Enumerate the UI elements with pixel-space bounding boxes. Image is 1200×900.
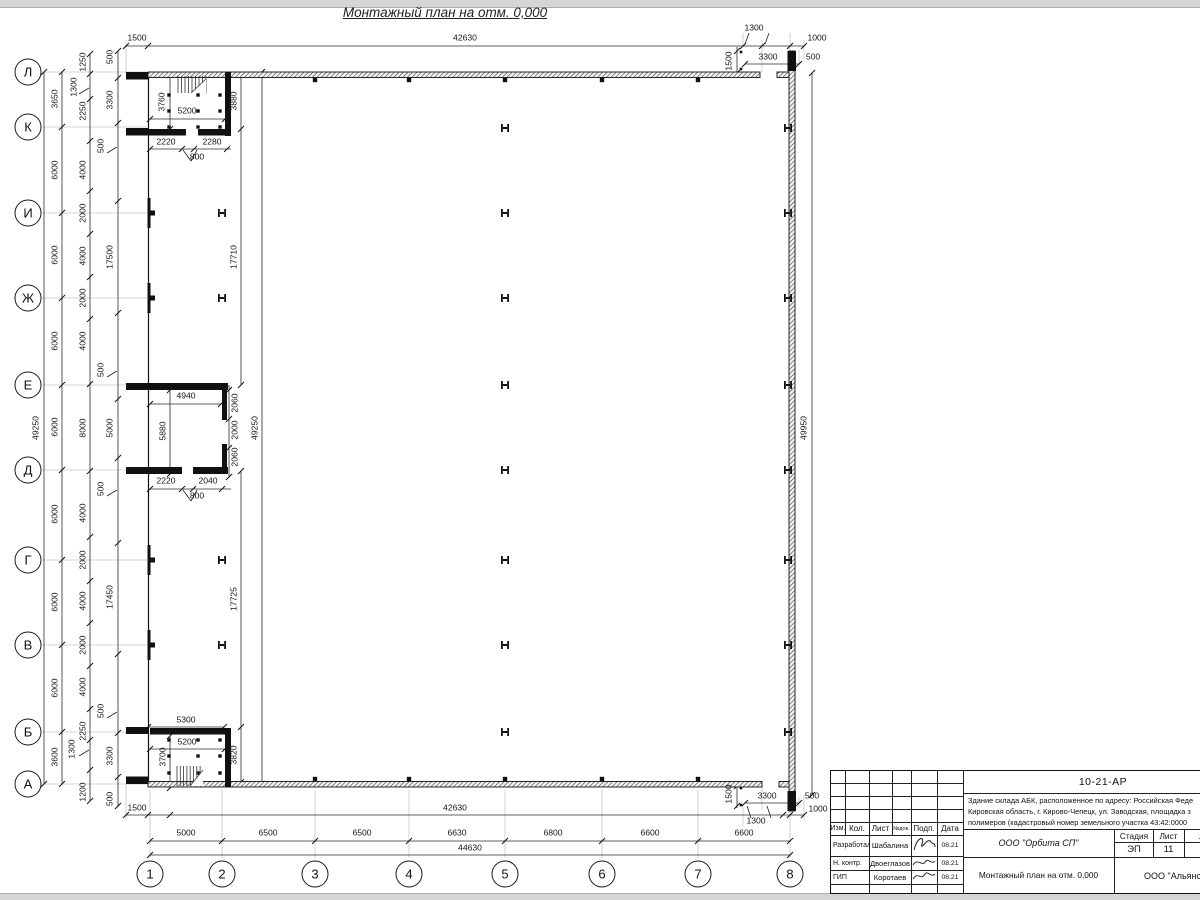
dim-label: 1200 [79, 782, 88, 801]
dim-label: 8000 [79, 418, 88, 437]
row-axis-bubble-Г: Г [15, 547, 42, 574]
dim-label: 1300 [744, 24, 763, 33]
dim-label: 4000 [79, 677, 88, 696]
dim-label: 1000 [808, 805, 827, 814]
perimeter-wall [789, 51, 795, 811]
h-column-marker [503, 384, 507, 386]
tb-col-data: Дата [937, 822, 963, 835]
dim-label: 2000 [79, 635, 88, 654]
pilaster-column [151, 558, 156, 563]
h-column-marker [786, 469, 790, 471]
room-column-dot [167, 93, 170, 96]
dim-label: 2060 [231, 447, 240, 466]
h-column-marker [786, 384, 790, 386]
col-axis-bubble-5: 5 [492, 861, 519, 888]
h-column-marker [790, 124, 792, 132]
h-column-marker [224, 294, 226, 302]
dim-label: 3600 [51, 747, 60, 766]
dim-label: 4000 [79, 591, 88, 610]
dim-label: 6000 [51, 504, 60, 523]
h-column-marker [507, 728, 509, 736]
dim-label: 2250 [79, 101, 88, 120]
tb-col-izm: Изм. [831, 822, 845, 835]
dim-label: 6000 [51, 678, 60, 697]
dim-label: 3300 [758, 53, 777, 62]
dim-label: 2000 [79, 550, 88, 569]
h-column-marker [507, 466, 509, 474]
tb-grid-line [869, 771, 870, 893]
wall-column [407, 777, 411, 781]
dim-label: 3880 [230, 91, 239, 110]
dim-label: 3820 [230, 745, 239, 764]
room-column-dot [218, 738, 221, 741]
tb-plan-name: Монтажный план на отм. 0,000 [964, 857, 1113, 893]
dim-label: 3300 [106, 90, 115, 109]
dim-label: 2250 [79, 721, 88, 740]
plan-drawing [0, 0, 1200, 900]
dim-label: 2220 [156, 477, 175, 486]
h-column-marker [784, 728, 786, 736]
tb-grid-line [845, 771, 846, 835]
wall-pier [788, 51, 797, 71]
h-column-marker [790, 556, 792, 564]
tb-date: 08.21 [938, 870, 962, 884]
dim-label: 1300 [746, 817, 765, 826]
dim-label: 6000 [51, 417, 60, 436]
tb-grid-line [1114, 842, 1200, 843]
dim-label: 2280 [202, 138, 221, 147]
dim-label: 500 [106, 792, 115, 806]
h-column-marker [507, 381, 509, 389]
row-axis-bubble-Д: Д [15, 457, 42, 484]
dim-leader [107, 490, 117, 496]
pilaster-column [151, 296, 156, 301]
dim-label: 500 [806, 53, 820, 62]
wall-pier [148, 467, 182, 474]
dim-leader [107, 712, 117, 718]
pilaster [148, 283, 151, 313]
tb-grid-line [831, 809, 963, 810]
dim-label: 1300 [70, 77, 79, 96]
dim-label: 3700 [159, 747, 168, 766]
room-column-dot [167, 754, 170, 757]
tb-name: Шабалина [870, 835, 910, 856]
tb-role: ГИП [833, 870, 869, 884]
h-column-marker [507, 124, 509, 132]
dim-label: 3300 [106, 746, 115, 765]
h-column-marker [503, 127, 507, 129]
h-column-marker [501, 466, 503, 474]
dim-label: 4000 [79, 160, 88, 179]
h-column-marker [220, 559, 224, 561]
dim-leader [107, 371, 117, 377]
dim-label: 1500 [127, 804, 146, 813]
dim-label: 5200 [177, 107, 196, 116]
dim-label: 800 [190, 153, 204, 162]
wall-pier [193, 467, 228, 474]
wall-pier [148, 383, 228, 390]
tb-grid-line [831, 835, 963, 836]
room-column-dot [167, 125, 170, 128]
h-column-marker [786, 127, 790, 129]
h-column-marker [786, 644, 790, 646]
dim-leader [107, 147, 117, 153]
h-column-marker [218, 294, 220, 302]
wall-column [503, 777, 507, 781]
dim-label: 500 [97, 704, 106, 718]
dim-label: 5200 [177, 738, 196, 747]
dim-label: 4940 [176, 392, 195, 401]
dim-label: 2000 [231, 420, 240, 439]
row-axis-bubble-И: И [15, 200, 42, 227]
dim-label: 5300 [176, 716, 195, 725]
dim-label: 6500 [352, 829, 371, 838]
wall-pier [126, 128, 148, 136]
h-column-marker [220, 212, 224, 214]
tb-role: Разработал [833, 835, 869, 856]
h-column-marker [790, 641, 792, 649]
tb-grid-line [963, 793, 1200, 794]
dim-leader [765, 33, 769, 44]
h-column-marker [507, 209, 509, 217]
dim-label: 4000 [79, 503, 88, 522]
pilaster [148, 198, 151, 228]
dim-label: 5000 [176, 829, 195, 838]
pilaster [148, 630, 151, 660]
dim-label: 6500 [258, 829, 277, 838]
dim-label: 5880 [159, 421, 168, 440]
tb-grid-line [831, 856, 963, 857]
h-column-marker [786, 559, 790, 561]
pilaster [148, 545, 151, 575]
h-column-marker [507, 294, 509, 302]
col-axis-bubble-7: 7 [685, 861, 712, 888]
dim-label: 17500 [106, 245, 115, 269]
dim-label: 2000 [79, 288, 88, 307]
h-column-marker [503, 297, 507, 299]
dim-label: 17710 [230, 245, 239, 269]
h-column-marker [501, 556, 503, 564]
dim-leader [79, 88, 89, 94]
col-axis-bubble-3: 3 [302, 861, 329, 888]
dim-label: 42630 [453, 34, 477, 43]
dim-label: 5000 [106, 418, 115, 437]
wall-pier [198, 129, 231, 136]
tb-sheet-value: 11 [1153, 842, 1184, 857]
tb-name: Коротаев [870, 870, 910, 884]
dim-label: 500 [805, 792, 819, 801]
row-axis-bubble-Л: Л [15, 59, 42, 86]
wall-pier [788, 791, 797, 811]
dim-label: 2220 [156, 138, 175, 147]
h-column-marker [220, 297, 224, 299]
row-axis-bubble-В: В [15, 632, 42, 659]
tb-sheets-value: 1 [1184, 842, 1200, 857]
wall-pier [148, 129, 186, 136]
project-description-line: полимеров (кадастровый номер земельного … [968, 817, 1200, 827]
h-column-marker [501, 381, 503, 389]
h-column-marker [218, 556, 220, 564]
dim-label: 1000 [807, 34, 826, 43]
h-column-marker [784, 294, 786, 302]
dim-label: 6630 [447, 829, 466, 838]
col-axis-bubble-2: 2 [209, 861, 236, 888]
h-column-marker [786, 297, 790, 299]
dim-label: 6000 [51, 592, 60, 611]
dim-label: 3760 [158, 92, 167, 111]
h-column-marker [224, 556, 226, 564]
dim-leader [767, 806, 771, 818]
dim-label: 42630 [443, 804, 467, 813]
room-column-dot [218, 771, 221, 774]
dim-label: 1300 [68, 739, 77, 758]
h-column-marker [503, 469, 507, 471]
wall-column [407, 78, 411, 82]
drawing-sheet: Монтажный план на отм. 0,000 15004263013… [0, 0, 1200, 900]
corner-dot [740, 68, 743, 71]
room-column-dot [167, 109, 170, 112]
h-column-marker [501, 728, 503, 736]
h-column-marker [220, 644, 224, 646]
perimeter-wall [148, 72, 760, 78]
wall-column [696, 78, 700, 82]
h-column-marker [790, 728, 792, 736]
corner-dot [740, 804, 743, 807]
dim-label: 2060 [231, 393, 240, 412]
dim-label: 500 [97, 139, 106, 153]
dim-leader [745, 33, 749, 44]
tb-grid-line [892, 771, 893, 835]
title-block: 10-21-АР Здание склада АБК, расположенно… [830, 770, 1200, 894]
row-axis-bubble-Ж: Ж [15, 285, 42, 312]
pilaster-column [151, 211, 156, 216]
tb-grid-line [831, 796, 963, 797]
dim-leader [79, 750, 89, 756]
wall-pier [126, 383, 148, 390]
h-column-marker [790, 381, 792, 389]
dim-label: 44630 [458, 844, 482, 853]
dim-label: 4000 [79, 331, 88, 350]
room-column-dot [167, 771, 170, 774]
wall-column [600, 777, 604, 781]
room-column-dot [196, 109, 199, 112]
corner-dot [740, 787, 743, 790]
tb-sheet-label: Лист [1153, 829, 1184, 842]
dim-label: 500 [106, 50, 115, 64]
wall-column [313, 78, 317, 82]
dim-label: 49250 [251, 416, 260, 440]
dim-label: 2040 [198, 477, 217, 486]
wall-column [503, 78, 507, 82]
tb-col-list: Лист [869, 822, 892, 835]
h-column-marker [503, 559, 507, 561]
dim-label: 17725 [230, 587, 239, 611]
dim-label: 1500 [725, 784, 734, 803]
room-column-dot [196, 754, 199, 757]
h-column-marker [501, 124, 503, 132]
tb-stage-value: ЭП [1115, 842, 1153, 857]
tb-sheets-label: Ли [1184, 829, 1200, 842]
row-axis-bubble-Б: Б [15, 719, 42, 746]
h-column-marker [218, 641, 220, 649]
tb-col-ndok: №док. [892, 822, 911, 835]
tb-grid-line [831, 783, 963, 784]
tb-grid-line [831, 870, 963, 871]
tb-company: ООО "Альянс [1144, 869, 1200, 883]
room-column-dot [196, 738, 199, 741]
doc-code: 10-21-АР [963, 771, 1200, 793]
tb-grid-line [1184, 829, 1185, 857]
dim-label: 6600 [734, 829, 753, 838]
tb-name: Двоеглазов [870, 856, 910, 870]
dim-label: 1500 [127, 34, 146, 43]
room-column-dot [218, 754, 221, 757]
dim-label: 500 [97, 482, 106, 496]
col-axis-bubble-6: 6 [589, 861, 616, 888]
wall-pier [126, 777, 148, 785]
project-description-line: Кировская область, г. Кирово-Чепецк, ул.… [968, 806, 1200, 816]
corner-dot [740, 51, 743, 54]
dim-label: 1500 [725, 51, 734, 70]
wall-column [600, 78, 604, 82]
wall-pier [222, 390, 227, 420]
h-column-marker [501, 294, 503, 302]
col-axis-bubble-4: 4 [396, 861, 423, 888]
wall-pier [126, 467, 148, 474]
tb-grid-line [963, 829, 1200, 830]
h-column-marker [503, 212, 507, 214]
dim-label: 4000 [79, 246, 88, 265]
h-column-marker [501, 209, 503, 217]
row-axis-bubble-А: А [15, 771, 42, 798]
h-column-marker [786, 731, 790, 733]
tb-org: ООО "Орбита СП" [964, 829, 1113, 857]
h-column-marker [790, 209, 792, 217]
h-column-marker [507, 556, 509, 564]
tb-role: Н. контр. [833, 856, 869, 870]
tb-grid-line [937, 771, 938, 893]
h-column-marker [224, 209, 226, 217]
room-column-dot [218, 109, 221, 112]
wall-column [696, 777, 700, 781]
dim-label: 17450 [106, 585, 115, 609]
room-column-dot [218, 125, 221, 128]
room-column-dot [196, 125, 199, 128]
pilaster-column [151, 643, 156, 648]
col-axis-bubble-8: 8 [777, 861, 804, 888]
room-column-dot [196, 93, 199, 96]
h-column-marker [784, 209, 786, 217]
h-column-marker [786, 212, 790, 214]
tb-stage-label: Стадия [1115, 829, 1153, 842]
h-column-marker [784, 556, 786, 564]
dim-label: 3650 [51, 89, 60, 108]
signature [911, 833, 937, 885]
h-column-marker [503, 644, 507, 646]
tb-grid-line [831, 884, 963, 885]
tb-grid-line [963, 857, 1200, 858]
tb-grid-line [963, 771, 964, 893]
dim-label: 500 [97, 363, 106, 377]
dim-label: 49950 [800, 416, 809, 440]
dim-label: 49250 [32, 416, 41, 440]
dim-label: 3300 [757, 792, 776, 801]
row-axis-bubble-Е: Е [15, 372, 42, 399]
dim-label: 6000 [51, 160, 60, 179]
tb-date: 08.21 [938, 856, 962, 870]
tb-col-kol: Кол. [845, 822, 869, 835]
dim-label: 800 [190, 492, 204, 501]
h-column-marker [784, 124, 786, 132]
tb-grid-line [1153, 829, 1154, 857]
tb-grid-line [911, 771, 912, 893]
row-axis-bubble-К: К [15, 114, 42, 141]
h-column-marker [790, 294, 792, 302]
perimeter-wall [148, 782, 762, 788]
dim-label: 2000 [79, 203, 88, 222]
wall-pier [150, 728, 231, 735]
dim-label: 6000 [51, 245, 60, 264]
room-column-dot [167, 738, 170, 741]
tb-grid-line [831, 822, 963, 823]
h-column-marker [507, 641, 509, 649]
h-column-marker [784, 466, 786, 474]
h-column-marker [503, 731, 507, 733]
room-column-dot [218, 93, 221, 96]
wall-pier [126, 72, 148, 80]
h-column-marker [224, 641, 226, 649]
dim-label: 6600 [640, 829, 659, 838]
h-column-marker [501, 641, 503, 649]
h-column-marker [218, 209, 220, 217]
tb-grid-line [1114, 829, 1115, 893]
h-column-marker [790, 466, 792, 474]
wall-column [313, 777, 317, 781]
wall-pier [126, 727, 148, 734]
project-description-line: Здание склада АБК, расположенное по адре… [968, 795, 1200, 805]
dim-label: 6000 [51, 331, 60, 350]
h-column-marker [784, 381, 786, 389]
tb-date: 08.21 [938, 835, 962, 856]
dim-label: 6800 [543, 829, 562, 838]
col-axis-bubble-1: 1 [137, 861, 164, 888]
dim-label: 1250 [79, 52, 88, 71]
h-column-marker [784, 641, 786, 649]
